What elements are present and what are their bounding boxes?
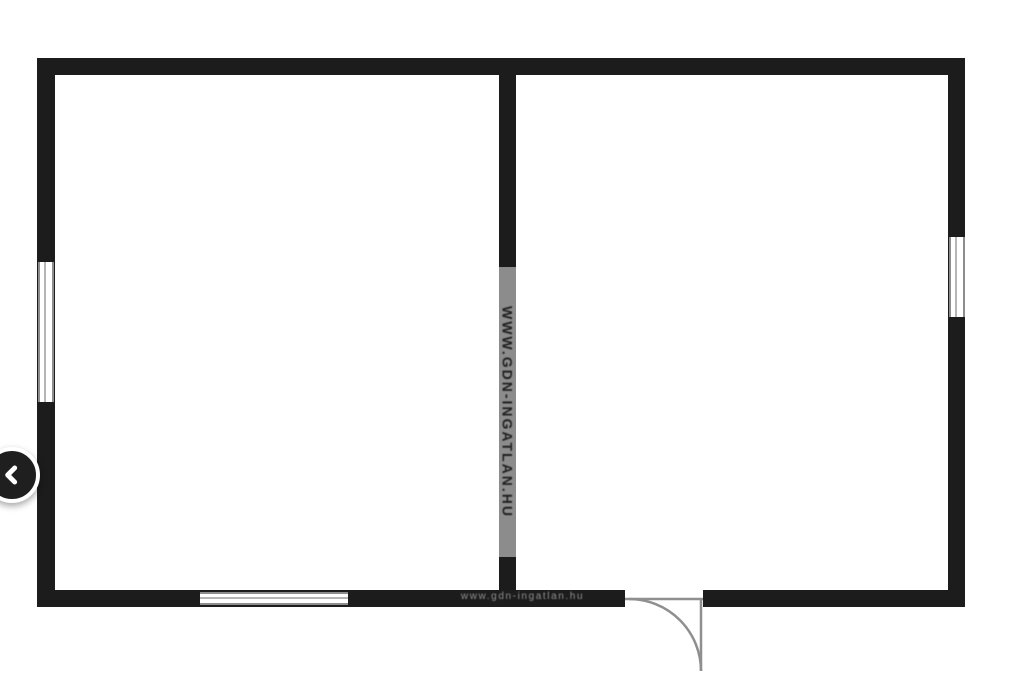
window-bottom-wall [200, 592, 348, 605]
prev-image-button[interactable] [0, 447, 40, 503]
watermark-vertical-text: www.gdn-ingatlan.hu [500, 306, 516, 518]
room-left [55, 75, 499, 590]
door-swing-symbol [615, 586, 725, 680]
wall-right [948, 58, 965, 607]
chevron-left-icon [0, 462, 25, 488]
floorplan-canvas: www.gdn-ingatlan.hu www.gdn-ingatlan.hu [0, 0, 1024, 680]
window-right-wall [949, 237, 965, 317]
watermark-bottom: www.gdn-ingatlan.hu [415, 589, 630, 604]
room-right [516, 75, 948, 590]
window-left-wall [38, 262, 54, 402]
watermark-vertical: www.gdn-ingatlan.hu [499, 267, 516, 557]
